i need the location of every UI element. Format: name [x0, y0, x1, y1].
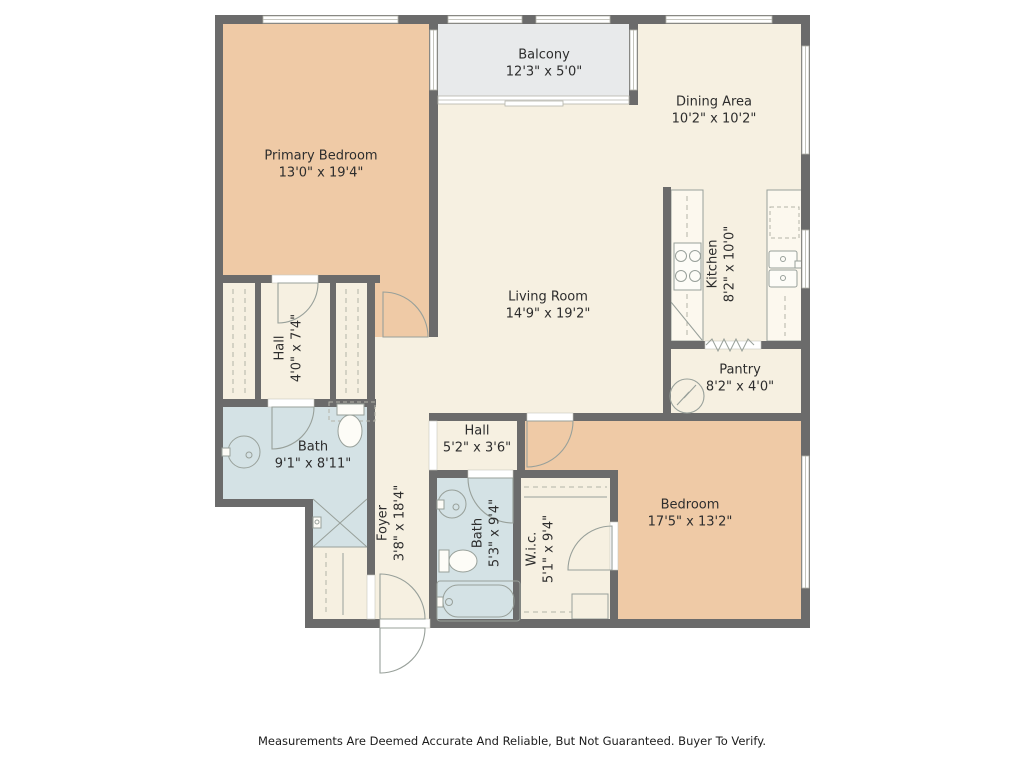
room-dims: 10'2" x 10'2" [672, 111, 757, 128]
room-dims: 5'1" x 9'4" [541, 515, 558, 583]
room-dims: 8'2" x 4'0" [706, 379, 774, 396]
room-label-pantry: Pantry 8'2" x 4'0" [706, 362, 774, 395]
room-dims: 14'9" x 19'2" [506, 306, 591, 323]
room-dims: 9'1" x 8'11" [275, 456, 351, 473]
room-label-kitchen: Kitchen 8'2" x 10'0" [705, 226, 738, 302]
room-name: Hall [443, 423, 511, 440]
room-name: Bath [470, 499, 487, 567]
room-dims: 12'3" x 5'0" [506, 64, 582, 81]
room-dims: 3'8" x 18'4" [392, 485, 409, 561]
room-label-wic: W.i.c. 5'1" x 9'4" [524, 515, 557, 583]
room-name: Bath [275, 439, 351, 456]
room-dims: 5'2" x 3'6" [443, 440, 511, 457]
room-label-living-room: Living Room 14'9" x 19'2" [506, 289, 591, 322]
room-name: W.i.c. [524, 515, 541, 583]
room-label-hall-lower: Hall 5'2" x 3'6" [443, 423, 511, 456]
room-name: Balcony [506, 47, 582, 64]
room-name: Primary Bedroom [264, 148, 377, 165]
room-label-bath-second: Bath 5'3" x 9'4" [470, 499, 503, 567]
room-label-hall-upper: Hall 4'0" x 7'4" [272, 314, 305, 382]
room-label-dining-area: Dining Area 10'2" x 10'2" [672, 94, 757, 127]
door-arc-icon [380, 628, 425, 673]
room-dims: 8'2" x 10'0" [722, 226, 739, 302]
room-dims: 17'5" x 13'2" [648, 514, 733, 531]
room-name: Bedroom [648, 497, 733, 514]
disclaimer-text: Measurements Are Deemed Accurate And Rel… [0, 734, 1024, 748]
room-name: Dining Area [672, 94, 757, 111]
room-name: Kitchen [705, 226, 722, 302]
floor-plan-page: Balcony 12'3" x 5'0" Dining Area 10'2" x… [0, 0, 1024, 768]
room-label-foyer: Foyer 3'8" x 18'4" [375, 485, 408, 561]
room-dims: 13'0" x 19'4" [264, 165, 377, 182]
room-label-balcony: Balcony 12'3" x 5'0" [506, 47, 582, 80]
room-dims: 5'3" x 9'4" [487, 499, 504, 567]
room-label-bedroom: Bedroom 17'5" x 13'2" [648, 497, 733, 530]
stove-icon [674, 243, 701, 290]
floor-plan-graphic [0, 0, 1024, 768]
room-name: Living Room [506, 289, 591, 306]
room-name: Hall [272, 314, 289, 382]
room-name: Pantry [706, 362, 774, 379]
room-name: Foyer [375, 485, 392, 561]
room-dims: 4'0" x 7'4" [289, 314, 306, 382]
room-label-primary-bedroom: Primary Bedroom 13'0" x 19'4" [264, 148, 377, 181]
room-label-bath-main: Bath 9'1" x 8'11" [275, 439, 351, 472]
